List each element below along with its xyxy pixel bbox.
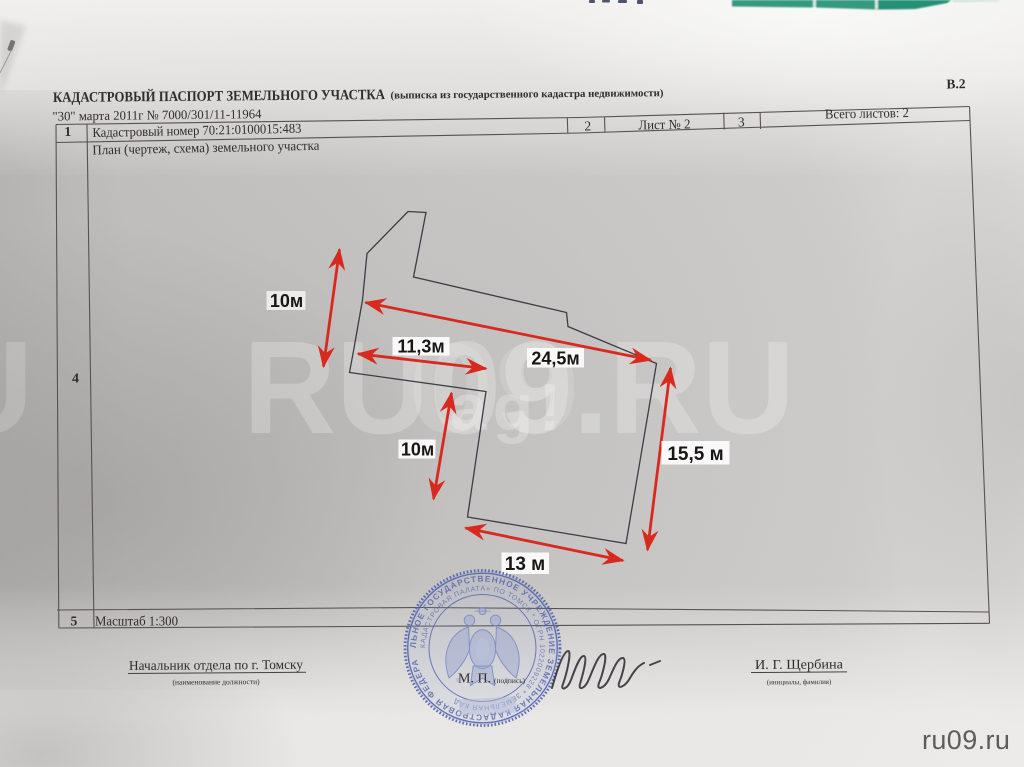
svg-text:ru09.ru: ru09.ru (922, 725, 1010, 755)
